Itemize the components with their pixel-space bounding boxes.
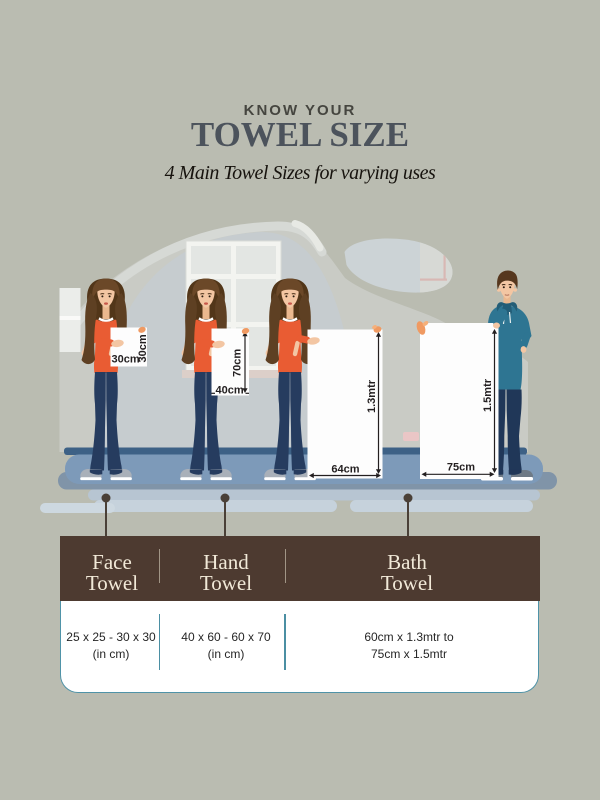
svg-text:30cm: 30cm — [137, 334, 149, 362]
svg-text:1.3mtr: 1.3mtr — [366, 379, 378, 413]
svg-text:30cm: 30cm — [112, 354, 140, 366]
svg-text:75cm: 75cm — [447, 462, 475, 474]
svg-text:64cm: 64cm — [331, 464, 359, 476]
svg-text:1.5mtr: 1.5mtr — [482, 378, 494, 412]
svg-text:70cm: 70cm — [232, 349, 244, 377]
svg-text:40cm: 40cm — [216, 385, 244, 397]
